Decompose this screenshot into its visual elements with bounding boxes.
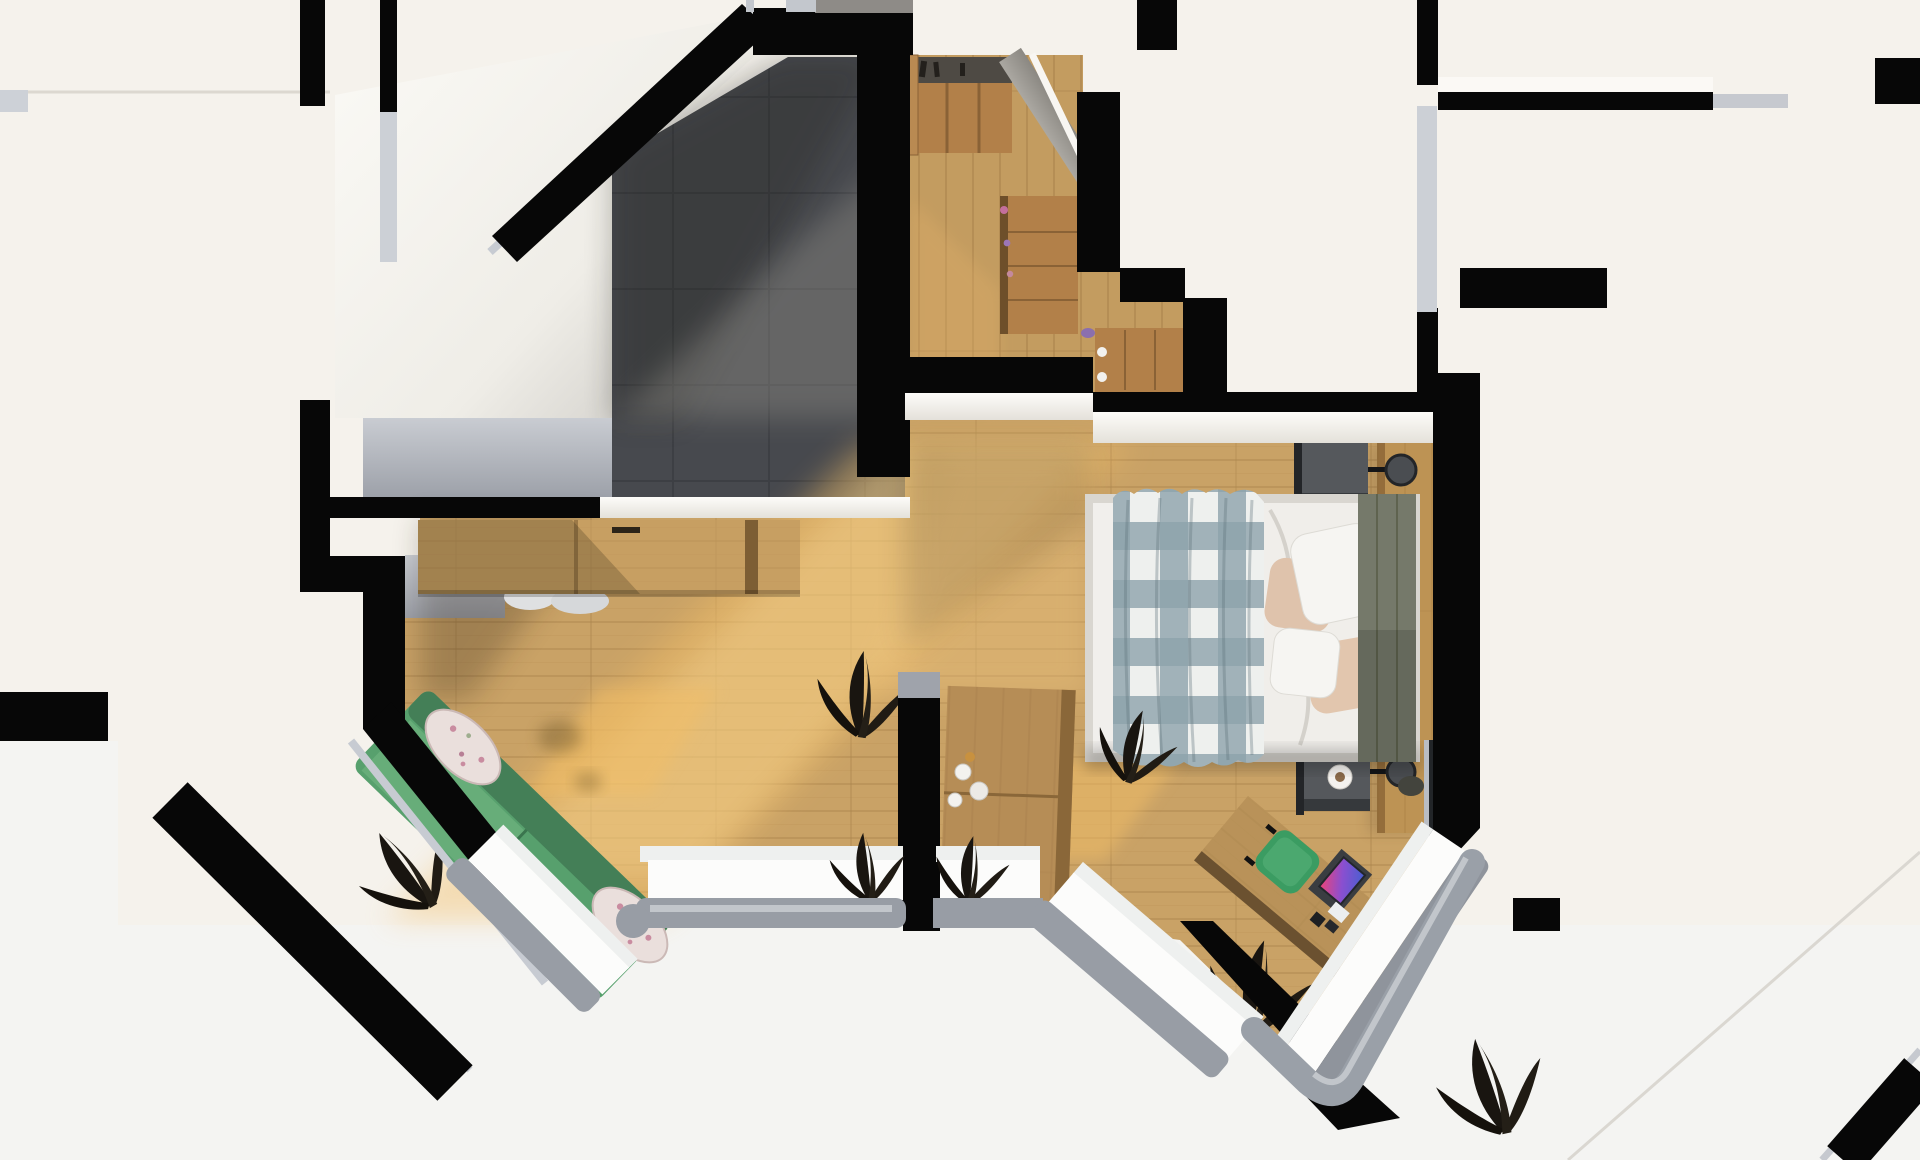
floorplan-svg: Top-down 3D render of an attic apartment… <box>0 0 1920 1160</box>
wall-dressing-east <box>1077 92 1120 272</box>
dresser-bottom-body <box>1095 328 1185 392</box>
cup-1 <box>955 764 971 780</box>
headboard: Olive upholstered headboard on wood acce… <box>1358 494 1416 762</box>
partition-black <box>898 672 940 923</box>
white-knob <box>1097 372 1107 382</box>
wall-stairroom-south <box>300 497 600 518</box>
desk-edge-shadow <box>418 590 800 597</box>
window-frame-corner <box>616 904 650 938</box>
wardrobe: Open wardrobe with clothes rail <box>906 55 1012 155</box>
partition-wall <box>898 672 940 923</box>
purple-accessory <box>1004 240 1011 247</box>
silver-post <box>746 0 754 12</box>
roof-block-gray <box>815 0 913 13</box>
wall-tr-glass <box>1417 106 1437 312</box>
window-frame <box>933 898 1043 928</box>
patch-shadow-spot <box>538 721 582 753</box>
patch-shadow-spot2 <box>574 772 602 792</box>
vase-icon <box>1398 776 1424 796</box>
wall-stub-right-mid <box>1460 268 1607 308</box>
lamp-head-icon <box>1386 455 1416 485</box>
wall-tr-stub1 <box>1417 0 1438 85</box>
cup-amber <box>965 752 975 762</box>
partition-cap <box>898 672 940 698</box>
hanger-icon <box>960 63 965 76</box>
wall-glass-strip <box>380 112 397 262</box>
wall-tr-silver-tail <box>1713 94 1788 108</box>
wall-dressing-step <box>1120 268 1185 302</box>
white-knob <box>1097 347 1107 357</box>
window-sill <box>936 846 1040 862</box>
dresser-right-edge <box>1000 196 1008 334</box>
dresser-bottom: Low wooden dresser with white knobs <box>1081 328 1185 392</box>
wall-desk-seam <box>745 520 758 594</box>
wall-stub-topleft-1 <box>300 0 325 106</box>
wall-tr-north-cap <box>1438 77 1713 92</box>
wall-bedroom-east <box>1433 373 1480 854</box>
wall-dressing-south <box>905 357 1093 393</box>
dresser-right: Wooden dresser with pink accessories <box>1000 196 1078 334</box>
stair-room: Tiled room with sloped roof walls <box>335 17 905 497</box>
purple-accessory <box>1081 328 1095 338</box>
wall-tr-stub2 <box>1417 308 1438 392</box>
desk-handle <box>612 527 640 533</box>
pink-accessory <box>1007 271 1013 277</box>
neighbor-wall-cap <box>0 90 28 112</box>
headboard-shade <box>1358 630 1416 762</box>
wall-stub-left-edge <box>0 692 108 741</box>
wall-bedroom-north <box>1093 392 1480 412</box>
wall-inner-face <box>363 418 612 497</box>
wall-stub-topleft-2 <box>380 0 397 112</box>
wall-cap-white-dressing <box>905 393 1093 420</box>
wall-desk: Long wooden wall desk with two chairs <box>418 520 800 597</box>
wall-tr-north <box>1438 92 1713 110</box>
coffee-icon <box>1335 772 1345 782</box>
pillow-white-2 <box>1269 627 1342 700</box>
wall-stub-topcenter <box>1137 0 1177 50</box>
outside-ground <box>0 925 1920 1160</box>
wall-stub-bay-right <box>1513 898 1560 931</box>
wall-dressing-west <box>857 53 910 477</box>
floorplan-render: Top-down 3D render of an attic apartment… <box>0 0 1920 1160</box>
wall-stub-right-edge <box>1875 58 1920 104</box>
silver-post-2 <box>786 0 816 12</box>
outside-ground-left <box>0 741 118 1160</box>
nightstand-bottom-front <box>1302 799 1370 811</box>
pink-accessory <box>1000 206 1008 214</box>
cup-2 <box>970 782 988 800</box>
window-frame <box>636 898 906 928</box>
wall-cap-white-bedroom <box>1093 412 1433 443</box>
wall-cap-white-studio <box>600 497 910 518</box>
wall-dressing-north <box>753 8 913 55</box>
window-frame-inner <box>650 905 892 912</box>
cup-3 <box>948 793 962 807</box>
